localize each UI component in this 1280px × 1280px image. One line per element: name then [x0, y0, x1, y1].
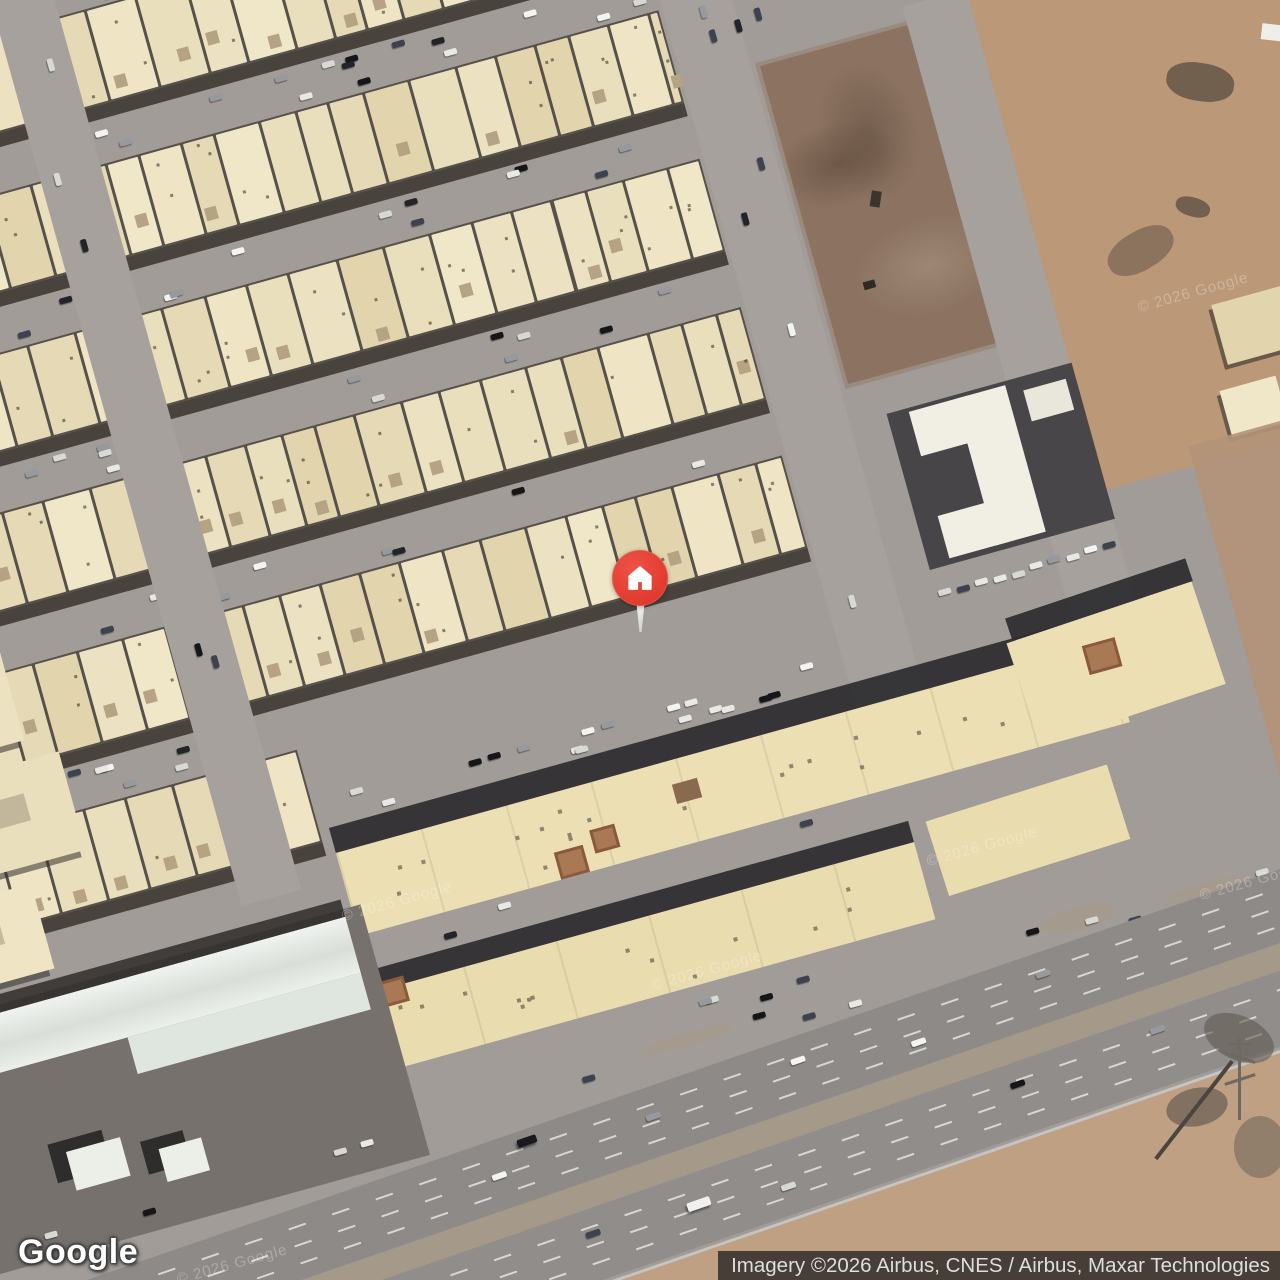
marker-stem: [636, 604, 645, 632]
tower-crossarm: [1228, 1043, 1251, 1045]
imagery-attribution: Imagery ©2026 Airbus, CNES / Airbus, Max…: [718, 1251, 1280, 1280]
marker-circle: [612, 550, 668, 606]
google-logo[interactable]: Google: [18, 1233, 138, 1272]
home-icon: [625, 563, 655, 593]
satellite-imagery-layer: [0, 0, 1280, 1280]
transmission-tower: [1140, 1000, 1280, 1190]
attribution-text: Imagery ©2026 Airbus, CNES / Airbus, Max…: [731, 1254, 1270, 1277]
highway-layer: [0, 0, 1280, 1280]
home-place-marker[interactable]: [612, 550, 668, 640]
rubble: [1234, 1116, 1280, 1178]
satellite-map-viewport[interactable]: © 2026 Google© 2026 Google© 2026 Google©…: [0, 0, 1280, 1280]
